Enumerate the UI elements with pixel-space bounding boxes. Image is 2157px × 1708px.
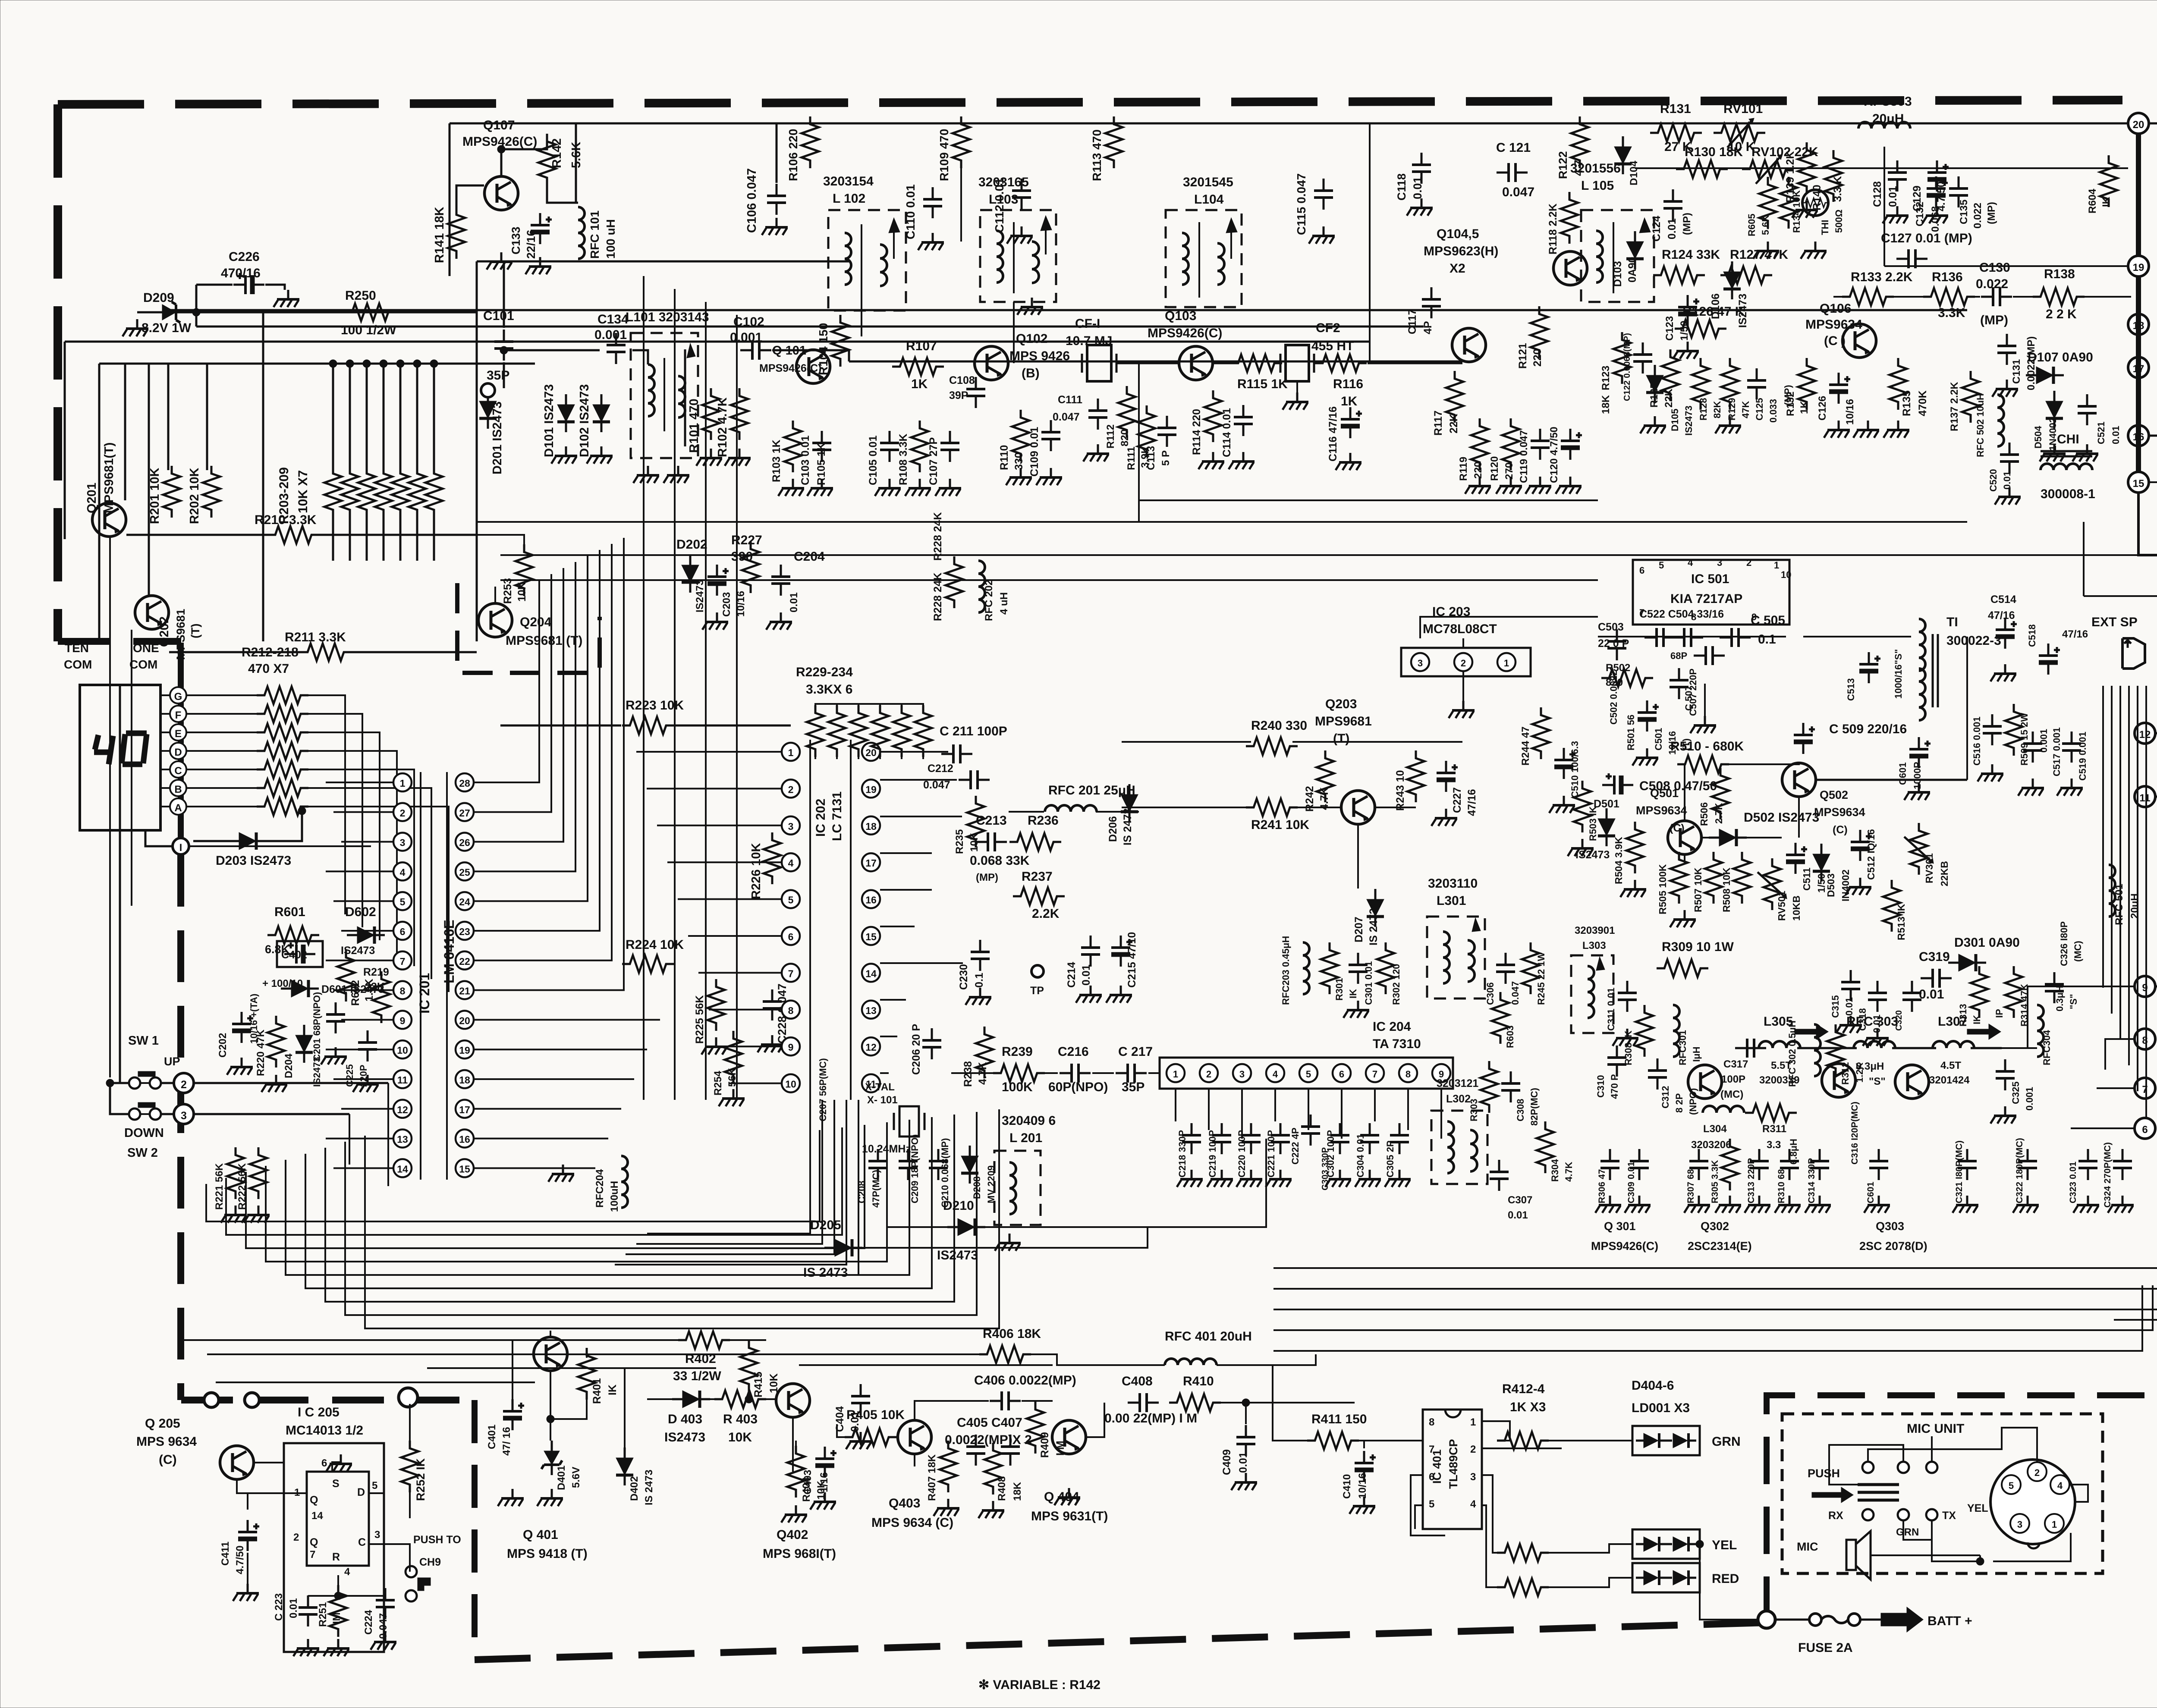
svg-text:TL489CP: TL489CP: [1447, 1439, 1460, 1489]
svg-text:R220 47K: R220 47K: [255, 1029, 267, 1076]
svg-text:C320: C320: [1894, 1010, 1904, 1031]
svg-text:D107 0A90: D107 0A90: [2028, 350, 2093, 364]
svg-text:R102 4.7K: R102 4.7K: [716, 397, 729, 457]
svg-text:C511: C511: [1801, 867, 1812, 891]
svg-text:TEN: TEN: [65, 641, 89, 655]
svg-text:8 2P: 8 2P: [1674, 1093, 1685, 1113]
svg-text:C321 I80P(MC): C321 I80P(MC): [1954, 1140, 1964, 1203]
svg-text:RX: RX: [1828, 1510, 1843, 1522]
svg-text:6: 6: [2142, 1124, 2148, 1136]
svg-text:20: 20: [459, 1015, 470, 1026]
svg-text:10K X7: 10K X7: [296, 470, 310, 513]
svg-text:"S": "S": [1869, 1076, 1886, 1087]
svg-text:MPS9634: MPS9634: [1805, 317, 1862, 332]
svg-text:C134: C134: [597, 312, 629, 327]
svg-text:2.2K: 2.2K: [1032, 907, 1060, 921]
svg-text:0.3μH: 0.3μH: [2054, 986, 2065, 1011]
svg-text:R240 330: R240 330: [1251, 719, 1307, 733]
svg-text:RED: RED: [1712, 1572, 1739, 1586]
svg-text:L 102: L 102: [833, 192, 865, 206]
svg-text:R306 47: R306 47: [1597, 1169, 1607, 1203]
svg-text:MPS 9634: MPS 9634: [136, 1435, 197, 1449]
svg-text:47/16: 47/16: [1466, 789, 1478, 816]
svg-text:60P(NPO): 60P(NPO): [1048, 1080, 1108, 1094]
svg-text:3: 3: [1239, 1069, 1245, 1080]
svg-text:R244 47: R244 47: [1520, 726, 1531, 766]
svg-text:TP: TP: [1030, 985, 1044, 997]
svg-text:18: 18: [865, 821, 877, 832]
svg-text:C111: C111: [1058, 394, 1082, 406]
svg-text:13: 13: [397, 1134, 408, 1145]
svg-text:500Ω: 500Ω: [1833, 210, 1844, 233]
svg-text:R601: R601: [274, 905, 305, 919]
svg-text:1: 1: [1504, 658, 1509, 669]
svg-text:MPS9426(C): MPS9426(C): [759, 362, 822, 374]
svg-text:RFC301: RFC301: [1677, 1030, 1688, 1065]
svg-text:8: 8: [1406, 1069, 1411, 1080]
svg-text:MIC UNIT: MIC UNIT: [1907, 1422, 1964, 1436]
svg-text:IC 201: IC 201: [417, 973, 432, 1014]
svg-text:F: F: [175, 710, 182, 721]
svg-text:21: 21: [459, 986, 470, 997]
svg-text:IS 2473: IS 2473: [643, 1469, 655, 1505]
svg-text:C225: C225: [344, 1064, 355, 1087]
svg-text:25: 25: [459, 867, 470, 878]
svg-text:3201545: 3201545: [1183, 175, 1233, 189]
svg-text:5: 5: [400, 896, 406, 907]
svg-text:R131: R131: [1660, 102, 1691, 116]
svg-text:IC 501: IC 501: [1691, 572, 1729, 586]
svg-text:MPS9681: MPS9681: [1315, 714, 1372, 728]
svg-text:C304 0.01: C304 0.01: [1355, 1133, 1366, 1177]
svg-text:22KB: 22KB: [1939, 861, 1950, 886]
svg-text:5: 5: [2009, 1480, 2014, 1491]
svg-text:R142: R142: [550, 138, 564, 168]
svg-text:1K: 1K: [1341, 394, 1358, 408]
svg-text:2: 2: [1461, 658, 1466, 669]
svg-text:10/16: 10/16: [1357, 1473, 1368, 1499]
svg-text:R128: R128: [1698, 398, 1709, 421]
svg-text:C503: C503: [1598, 621, 1624, 633]
svg-text:1: 1: [2052, 1519, 2057, 1530]
svg-text:D504: D504: [2033, 426, 2044, 449]
svg-text:C101: C101: [483, 309, 514, 323]
svg-text:8: 8: [1429, 1416, 1434, 1428]
svg-text:0.01: 0.01: [1080, 964, 1092, 986]
svg-text:R310 68: R310 68: [1777, 1169, 1786, 1203]
svg-text:R210 3.3K: R210 3.3K: [255, 513, 317, 527]
svg-text:MC14013 1/2: MC14013 1/2: [286, 1423, 363, 1438]
svg-text:C305 2P: C305 2P: [1385, 1140, 1396, 1177]
svg-text:R123: R123: [1600, 366, 1612, 390]
svg-text:R253: R253: [502, 578, 514, 604]
svg-text:3: 3: [374, 1529, 380, 1541]
svg-text:R136: R136: [1932, 270, 1963, 284]
svg-text:R112: R112: [1105, 424, 1116, 449]
svg-text:C303 330P: C303 330P: [1321, 1147, 1330, 1190]
svg-text:11: 11: [397, 1074, 408, 1086]
svg-text:CH9: CH9: [419, 1556, 441, 1568]
svg-text:2SC2314(E): 2SC2314(E): [1688, 1240, 1752, 1253]
svg-text:3.3 K: 3.3 K: [1832, 176, 1844, 202]
svg-text:0.01: 0.01: [1508, 1209, 1528, 1221]
svg-text:22: 22: [459, 956, 470, 967]
svg-text:(C ): (C ): [1824, 334, 1846, 348]
svg-text:D404-6: D404-6: [1632, 1378, 1674, 1393]
svg-text:Q102: Q102: [1016, 332, 1047, 346]
svg-text:0.068: 0.068: [1930, 206, 1941, 232]
svg-text:2: 2: [1746, 557, 1751, 568]
svg-text:12: 12: [2139, 729, 2151, 741]
svg-text:C513: C513: [1846, 678, 1856, 701]
svg-text:PUSH: PUSH: [1808, 1467, 1840, 1480]
svg-text:C118: C118: [1395, 173, 1408, 201]
svg-text:C522 C504 33/16: C522 C504 33/16: [1639, 608, 1724, 620]
svg-text:3: 3: [788, 821, 794, 832]
svg-text:MPS9426(C): MPS9426(C): [1148, 326, 1222, 340]
svg-text:R118 2.2K: R118 2.2K: [1547, 204, 1559, 254]
svg-text:5: 5: [788, 895, 794, 906]
svg-text:18K: 18K: [1600, 395, 1612, 414]
svg-text:4: 4: [1470, 1498, 1476, 1510]
svg-text:R117: R117: [1432, 411, 1444, 436]
svg-text:LM 6416E: LM 6416E: [441, 920, 457, 983]
svg-text:TA 7310: TA 7310: [1373, 1037, 1421, 1051]
svg-text:0.01: 0.01: [288, 1598, 299, 1618]
svg-text:Q402: Q402: [777, 1528, 808, 1542]
svg-text:19: 19: [459, 1045, 470, 1056]
svg-text:RFC304: RFC304: [2041, 1030, 2052, 1065]
svg-text:IS2473: IS2473: [694, 580, 706, 612]
svg-text:L302: L302: [1446, 1093, 1471, 1105]
svg-text:COM: COM: [64, 658, 92, 671]
svg-text:R311: R311: [1762, 1123, 1786, 1135]
svg-text:Q501: Q501: [1650, 787, 1679, 800]
svg-text:D501: D501: [1594, 798, 1619, 810]
svg-text:1: 1: [400, 778, 406, 789]
svg-text:14: 14: [397, 1163, 408, 1174]
svg-text:0.01: 0.01: [2110, 426, 2121, 444]
svg-text:IμH: IμH: [1691, 1047, 1702, 1062]
svg-text:C601: C601: [1897, 762, 1908, 785]
svg-text:C311 0.01: C311 0.01: [1606, 988, 1616, 1031]
svg-text:0.001: 0.001: [2038, 729, 2049, 753]
svg-text:330: 330: [1013, 452, 1025, 470]
svg-text:R121: R121: [1517, 343, 1529, 369]
svg-text:C313 220P: C313 220P: [1746, 1158, 1756, 1203]
svg-text:UP: UP: [164, 1055, 180, 1068]
svg-text:1: 1: [1173, 1069, 1178, 1080]
svg-text:R236: R236: [1028, 813, 1059, 828]
svg-text:IS2473: IS2473: [664, 1430, 705, 1444]
svg-text:0.01: 0.01: [1919, 987, 1944, 1002]
svg-text:C124: C124: [1651, 216, 1663, 242]
svg-text:L 201: L 201: [1009, 1131, 1042, 1145]
svg-text:33 1/2W: 33 1/2W: [673, 1369, 721, 1383]
svg-text:SW 2: SW 2: [127, 1146, 158, 1160]
svg-text:RFC503: RFC503: [1864, 94, 1912, 109]
svg-text:C112 0.01: C112 0.01: [993, 178, 1006, 233]
svg-text:3: 3: [181, 1110, 187, 1122]
svg-text:THI: THI: [1820, 220, 1830, 235]
svg-text:R508 10K: R508 10K: [1721, 867, 1732, 912]
svg-text:Q 101: Q 101: [772, 344, 806, 358]
svg-text:C106 0.047: C106 0.047: [745, 168, 759, 233]
svg-text:R129: R129: [1726, 398, 1737, 421]
svg-text:R201 10K: R201 10K: [148, 468, 162, 524]
svg-text:E: E: [175, 728, 182, 740]
svg-text:IS2473: IS2473: [1575, 849, 1610, 861]
svg-text:D209: D209: [143, 291, 174, 305]
svg-text:R509 15 2W: R509 15 2W: [2019, 713, 2030, 766]
svg-text:PUSH TO: PUSH TO: [413, 1534, 461, 1546]
svg-text:6: 6: [1639, 565, 1644, 576]
svg-text:R212-218: R212-218: [242, 645, 299, 659]
svg-text:R108 3.3K: R108 3.3K: [897, 433, 909, 485]
svg-text:R: R: [332, 1551, 340, 1563]
svg-text:3201424: 3201424: [1929, 1074, 1970, 1086]
svg-text:GRN: GRN: [1896, 1526, 1919, 1538]
svg-text:35P: 35P: [1122, 1080, 1145, 1094]
svg-text:MPS9681(T): MPS9681(T): [102, 443, 116, 513]
svg-text:Q: Q: [310, 1536, 318, 1548]
svg-text:2: 2: [2034, 1467, 2040, 1478]
svg-text:10KB: 10KB: [1791, 895, 1802, 921]
svg-text:D402: D402: [629, 1476, 640, 1501]
svg-text:Q202: Q202: [157, 616, 171, 647]
svg-text:R303: R303: [1468, 1099, 1479, 1121]
svg-text:IS 2473: IS 2473: [1122, 808, 1134, 845]
svg-text:20: 20: [2133, 119, 2144, 131]
svg-text:R139 1.2K: R139 1.2K: [1784, 151, 1796, 203]
svg-text:0.068 33K: 0.068 33K: [970, 854, 1030, 868]
svg-text:C108: C108: [949, 374, 975, 386]
svg-text:16: 16: [865, 895, 877, 906]
svg-text:28: 28: [459, 778, 470, 789]
svg-text:R254: R254: [712, 1071, 724, 1096]
svg-text:C120 4.7/50: C120 4.7/50: [1548, 427, 1560, 483]
svg-text:D204: D204: [283, 1053, 295, 1078]
svg-text:R301: R301: [1334, 978, 1345, 1001]
svg-text:100 uH: 100 uH: [604, 219, 617, 259]
svg-text:3: 3: [400, 837, 406, 848]
svg-text:Q: Q: [310, 1494, 318, 1506]
svg-text:IK: IK: [2100, 196, 2112, 207]
svg-text:C114 0.01: C114 0.01: [1221, 408, 1233, 457]
svg-text:7: 7: [400, 956, 406, 967]
svg-text:17: 17: [865, 857, 877, 869]
svg-text:IC 202: IC 202: [814, 799, 828, 837]
svg-text:MPS9426(C): MPS9426(C): [1591, 1240, 1658, 1253]
svg-text:C408: C408: [1122, 1374, 1153, 1388]
svg-text:2: 2: [1206, 1069, 1211, 1080]
svg-text:C119 0.047: C119 0.047: [1518, 430, 1530, 483]
svg-text:470/16: 470/16: [221, 266, 261, 280]
svg-text:(T): (T): [189, 624, 202, 638]
svg-text:SW 1: SW 1: [128, 1034, 159, 1048]
svg-text:4: 4: [1688, 557, 1693, 568]
svg-text:(T): (T): [1333, 732, 1349, 746]
svg-text:4 uH: 4 uH: [998, 592, 1010, 615]
svg-text:C116 47/16: C116 47/16: [1327, 406, 1339, 462]
svg-text:Q403: Q403: [889, 1496, 920, 1510]
svg-text:C315: C315: [1830, 995, 1841, 1018]
svg-text:4P: 4P: [1422, 321, 1434, 334]
svg-text:C518: C518: [2027, 624, 2038, 647]
svg-text:4: 4: [2057, 1480, 2063, 1491]
svg-text:D203 IS2473: D203 IS2473: [216, 854, 291, 868]
svg-text:68P: 68P: [1670, 650, 1687, 661]
svg-text:C310: C310: [1595, 1075, 1606, 1098]
svg-text:C206 20 P: C206 20 P: [910, 1024, 922, 1075]
svg-text:C 217: C 217: [1118, 1045, 1153, 1059]
svg-text:IS2473: IS2473: [937, 1248, 978, 1262]
svg-text:R221 56K: R221 56K: [214, 1163, 225, 1210]
svg-text:5.5T: 5.5T: [1771, 1060, 1792, 1071]
svg-text:D 403: D 403: [668, 1412, 702, 1426]
svg-text:R313: R313: [1958, 1004, 1968, 1027]
svg-text:R104 150: R104 150: [817, 323, 830, 375]
svg-text:R408: R408: [996, 1476, 1008, 1501]
svg-text:YEL: YEL: [1712, 1538, 1737, 1552]
svg-text:12: 12: [865, 1042, 877, 1053]
svg-text:R110: R110: [998, 445, 1010, 470]
svg-text:10/16: 10/16: [1844, 399, 1856, 425]
svg-text:(B): (B): [1022, 366, 1040, 380]
svg-text:7: 7: [1372, 1069, 1377, 1080]
svg-text:R107: R107: [906, 339, 937, 353]
svg-text:0.1: 0.1: [973, 973, 985, 988]
svg-text:22K: 22K: [1663, 388, 1675, 408]
svg-text:26: 26: [459, 837, 470, 848]
svg-text:C133: C133: [509, 226, 522, 254]
svg-text:1K X3: 1K X3: [1510, 1400, 1546, 1414]
svg-text:27: 27: [459, 807, 470, 819]
svg-text:C326 I80P: C326 I80P: [2059, 921, 2069, 966]
svg-text:0.047: 0.047: [1510, 981, 1521, 1005]
svg-text:(MP): (MP): [1980, 313, 2008, 327]
svg-text:R116: R116: [1333, 377, 1363, 391]
svg-text:3200339: 3200339: [1759, 1074, 1799, 1086]
svg-text:R501 56: R501 56: [1626, 715, 1636, 750]
svg-text:A: A: [174, 802, 182, 814]
svg-text:12: 12: [397, 1104, 408, 1115]
svg-text:D202: D202: [676, 537, 707, 552]
svg-text:220: 220: [1472, 462, 1484, 479]
svg-text:C502 0.0022: C502 0.0022: [1608, 670, 1619, 725]
svg-text:C107 27P: C107 27P: [928, 437, 940, 485]
svg-text:R130 18K: R130 18K: [1685, 145, 1743, 159]
svg-text:C210 0.068(MP): C210 0.068(MP): [940, 1138, 950, 1208]
svg-text:0.01: 0.01: [1411, 176, 1424, 199]
svg-text:10.24MHz: 10.24MHz: [862, 1143, 911, 1155]
svg-text:R415: R415: [752, 1372, 764, 1397]
svg-text:3: 3: [1470, 1471, 1476, 1483]
svg-text:47K: 47K: [1740, 401, 1751, 418]
svg-text:470K: 470K: [1917, 390, 1929, 416]
svg-text:IS 2473: IS 2473: [1368, 908, 1380, 945]
svg-text:8.2V 1W: 8.2V 1W: [141, 321, 192, 335]
svg-text:C216: C216: [1058, 1045, 1089, 1059]
svg-text:C316 I20P(MC): C316 I20P(MC): [1850, 1102, 1860, 1165]
svg-text:LC 7131: LC 7131: [830, 791, 844, 841]
svg-text:D: D: [174, 747, 182, 758]
svg-text:C204: C204: [794, 549, 825, 564]
svg-text:R251: R251: [317, 1602, 329, 1627]
svg-text:0.01: 0.01: [1844, 997, 1855, 1016]
svg-text:RFC 401 20uH: RFC 401 20uH: [1165, 1329, 1252, 1344]
svg-text:MIC: MIC: [1797, 1540, 1818, 1553]
svg-text:RV301: RV301: [1924, 853, 1935, 883]
svg-text:C519 0.001: C519 0.001: [2077, 732, 2088, 781]
svg-text:0.001: 0.001: [730, 330, 762, 345]
svg-text:D602: D602: [345, 905, 376, 919]
svg-text:D102 IS2473: D102 IS2473: [578, 384, 591, 457]
svg-text:RFC 502 10uH: RFC 502 10uH: [1975, 393, 1986, 457]
svg-text:3201556: 3201556: [1570, 161, 1621, 176]
svg-text:R124 33K: R124 33K: [1662, 248, 1720, 262]
svg-text:"S": "S": [2068, 994, 2079, 1009]
svg-text:C317: C317: [1723, 1058, 1748, 1070]
svg-text:MPS 9631(T): MPS 9631(T): [1031, 1509, 1108, 1523]
svg-text:FUSE 2A: FUSE 2A: [1798, 1641, 1853, 1655]
svg-text:C105 0.01: C105 0.01: [867, 436, 879, 485]
svg-text:C514: C514: [1990, 593, 2016, 606]
svg-text:C601: C601: [1866, 1181, 1876, 1203]
svg-text:1: 1: [788, 747, 794, 758]
svg-text:LD001 X3: LD001 X3: [1632, 1401, 1690, 1415]
svg-text:18K: 18K: [1012, 1482, 1023, 1501]
svg-text:1/16: 1/16: [818, 1472, 830, 1492]
svg-text:MPS 9426: MPS 9426: [1009, 349, 1070, 363]
svg-text:3: 3: [1717, 557, 1722, 568]
svg-text:C130: C130: [1979, 261, 2010, 275]
svg-text:C117: C117: [1406, 309, 1418, 334]
svg-text:Q104,5: Q104,5: [1437, 227, 1479, 241]
svg-text:B: B: [174, 784, 182, 795]
svg-text:R239: R239: [1002, 1045, 1033, 1059]
svg-text:Q 301: Q 301: [1604, 1220, 1636, 1233]
svg-text:R603: R603: [1505, 1025, 1516, 1048]
svg-text:L303: L303: [1582, 940, 1606, 951]
svg-text:D103: D103: [1612, 261, 1624, 287]
svg-text:R503 IK: R503 IK: [1588, 806, 1598, 841]
svg-text:820: 820: [1119, 429, 1131, 446]
svg-text:IS2473: IS2473: [311, 1057, 322, 1087]
svg-text:D208: D208: [972, 1176, 982, 1199]
svg-text:C226: C226: [229, 250, 260, 264]
svg-text:R109 470: R109 470: [937, 129, 951, 181]
svg-text:3.3K: 3.3K: [1938, 306, 1965, 320]
svg-text:16: 16: [459, 1134, 470, 1145]
svg-text:0.022: 0.022: [1976, 277, 2008, 291]
svg-text:CF-I: CF-I: [1075, 317, 1100, 331]
svg-text:C501: C501: [1653, 728, 1664, 750]
svg-text:R605: R605: [1746, 213, 1757, 236]
svg-text:C215 47/10: C215 47/10: [1126, 932, 1138, 988]
svg-text:R132: R132: [1785, 392, 1796, 416]
svg-text:C214: C214: [1066, 962, 1078, 988]
svg-text:R406 18K: R406 18K: [983, 1327, 1041, 1341]
svg-text:C507 220P: C507 220P: [1688, 669, 1698, 716]
svg-text:R119: R119: [1458, 457, 1469, 481]
svg-text:R410: R410: [1183, 1374, 1214, 1388]
svg-text:D: D: [357, 1486, 365, 1498]
svg-text:470 P: 470 P: [1609, 1074, 1620, 1099]
svg-text:DOWN: DOWN: [124, 1126, 164, 1140]
svg-text:4: 4: [400, 867, 406, 878]
svg-text:0.033: 0.033: [1768, 399, 1779, 423]
